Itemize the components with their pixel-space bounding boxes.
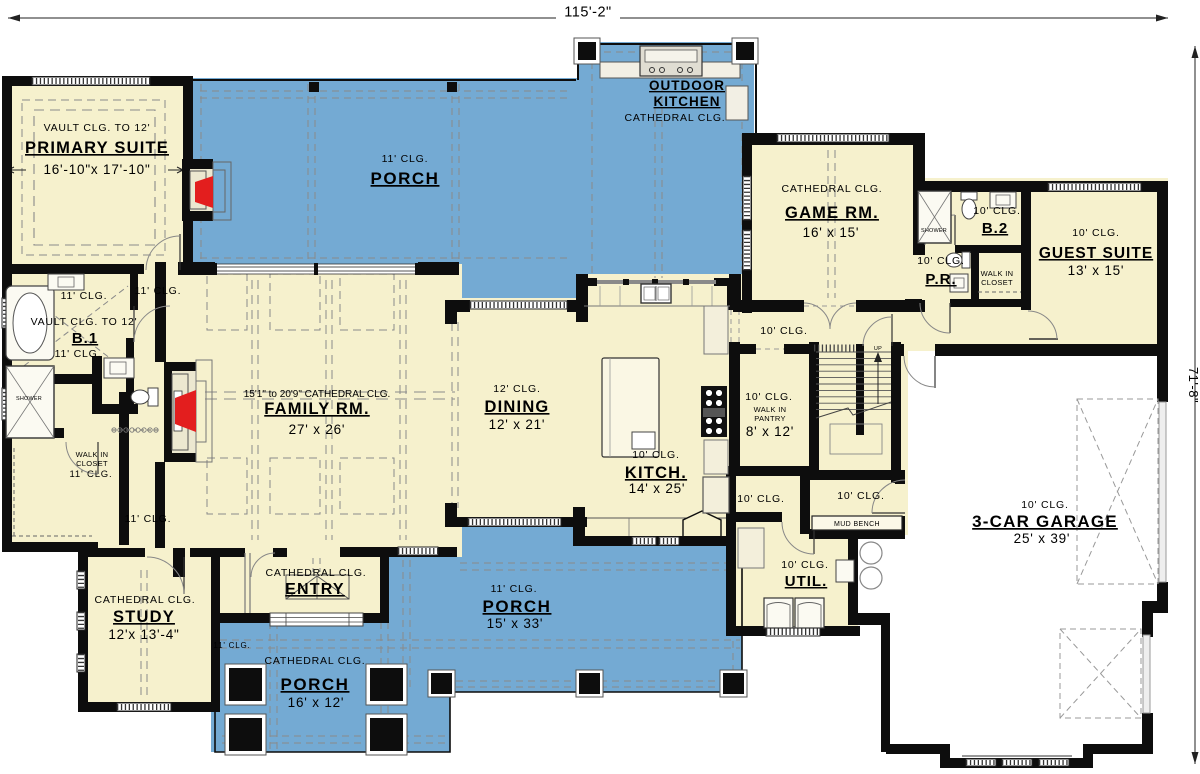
svg-text:WALK IN: WALK IN xyxy=(754,405,787,414)
svg-text:CATHEDRAL CLG.: CATHEDRAL CLG. xyxy=(265,567,366,579)
svg-text:FAMILY RM.: FAMILY RM. xyxy=(264,400,370,418)
svg-text:PANTRY: PANTRY xyxy=(754,414,786,423)
svg-text:27' x 26': 27' x 26' xyxy=(289,422,346,437)
svg-text:11' CLG.: 11' CLG. xyxy=(491,583,538,595)
svg-text:10' CLG.: 10' CLG. xyxy=(760,325,808,337)
svg-text:ENTRY: ENTRY xyxy=(285,581,345,598)
svg-text:15'1" to 20'9" CATHEDRAL CLG.: 15'1" to 20'9" CATHEDRAL CLG. xyxy=(244,389,391,400)
svg-text:11' CLG.: 11' CLG. xyxy=(55,348,102,360)
svg-text:13' x 15': 13' x 15' xyxy=(1068,263,1125,278)
svg-text:11' CLG.: 11' CLG. xyxy=(382,153,429,165)
svg-text:14' x 25': 14' x 25' xyxy=(629,481,686,496)
svg-text:10' CLG.: 10' CLG. xyxy=(1021,499,1069,511)
svg-text:3-CAR GARAGE: 3-CAR GARAGE xyxy=(972,512,1118,531)
svg-text:CATHEDRAL CLG.: CATHEDRAL CLG. xyxy=(94,594,195,606)
svg-text:11' CLG.: 11' CLG. xyxy=(213,641,250,650)
svg-text:WALK IN: WALK IN xyxy=(76,450,109,459)
svg-text:71'-8": 71'-8" xyxy=(1186,367,1200,403)
svg-text:CATHEDRAL CLG.: CATHEDRAL CLG. xyxy=(264,655,365,667)
svg-text:11' CLG.: 11' CLG. xyxy=(125,513,172,525)
svg-text:CLOSET: CLOSET xyxy=(981,278,1013,287)
svg-text:CATHEDRAL CLG.: CATHEDRAL CLG. xyxy=(781,183,882,195)
svg-text:STUDY: STUDY xyxy=(113,608,175,626)
svg-text:10' CLG.: 10' CLG. xyxy=(917,255,965,267)
svg-text:VAULT CLG. TO 12': VAULT CLG. TO 12' xyxy=(31,316,138,328)
svg-text:VAULT CLG. TO 12': VAULT CLG. TO 12' xyxy=(44,122,151,134)
svg-text:OUTDOOR: OUTDOOR xyxy=(649,78,725,93)
svg-text:PORCH: PORCH xyxy=(281,675,350,694)
svg-text:DINING: DINING xyxy=(485,398,550,416)
svg-text:8' x 12': 8' x 12' xyxy=(746,424,794,439)
svg-text:PORCH: PORCH xyxy=(371,169,440,188)
svg-text:UP: UP xyxy=(874,346,882,352)
svg-text:B.2: B.2 xyxy=(982,220,1008,237)
svg-text:CATHEDRAL CLG.: CATHEDRAL CLG. xyxy=(624,112,725,124)
svg-text:KITCHEN: KITCHEN xyxy=(654,94,721,109)
svg-text:10' CLG.: 10' CLG. xyxy=(973,205,1021,217)
svg-text:PRIMARY SUITE: PRIMARY SUITE xyxy=(25,139,169,157)
svg-text:10' CLG.: 10' CLG. xyxy=(837,490,885,502)
svg-text:PORCH: PORCH xyxy=(483,597,552,616)
svg-text:10' CLG.: 10' CLG. xyxy=(781,559,829,571)
svg-text:16' x 15': 16' x 15' xyxy=(803,225,860,240)
svg-text:25' x 39': 25' x 39' xyxy=(1014,531,1071,546)
svg-text:16' x 12': 16' x 12' xyxy=(288,695,345,710)
svg-text:GAME RM.: GAME RM. xyxy=(785,204,879,222)
svg-text:10' CLG.: 10' CLG. xyxy=(737,493,785,505)
svg-text:12'x 13'-4": 12'x 13'-4" xyxy=(108,627,179,642)
svg-text:15' x 33': 15' x 33' xyxy=(487,616,544,631)
svg-text:P.R.: P.R. xyxy=(925,271,956,288)
svg-text:10' CLG.: 10' CLG. xyxy=(745,391,793,403)
svg-text:12' CLG.: 12' CLG. xyxy=(493,383,541,395)
svg-text:115'-2": 115'-2" xyxy=(564,5,611,21)
svg-text:11' CLG.: 11' CLG. xyxy=(135,285,182,297)
svg-text:16'-10"x 17'-10": 16'-10"x 17'-10" xyxy=(43,162,150,177)
svg-text:MUD BENCH: MUD BENCH xyxy=(834,521,880,528)
svg-text:11' CLG.: 11' CLG. xyxy=(70,469,113,480)
svg-text:CLOSET: CLOSET xyxy=(76,459,108,468)
svg-text:12' x 21': 12' x 21' xyxy=(489,417,546,432)
svg-text:UTIL.: UTIL. xyxy=(785,573,828,590)
svg-text:10' CLG.: 10' CLG. xyxy=(632,449,680,461)
svg-text:SHOWER: SHOWER xyxy=(16,396,42,402)
svg-text:KITCH.: KITCH. xyxy=(625,464,687,482)
svg-text:GUEST SUITE: GUEST SUITE xyxy=(1039,245,1153,262)
svg-text:11' CLG.: 11' CLG. xyxy=(61,290,108,302)
svg-text:WALK IN: WALK IN xyxy=(981,269,1014,278)
svg-text:SHOWER: SHOWER xyxy=(921,228,947,234)
svg-text:B.1: B.1 xyxy=(72,330,98,347)
svg-text:10' CLG.: 10' CLG. xyxy=(1072,227,1120,239)
